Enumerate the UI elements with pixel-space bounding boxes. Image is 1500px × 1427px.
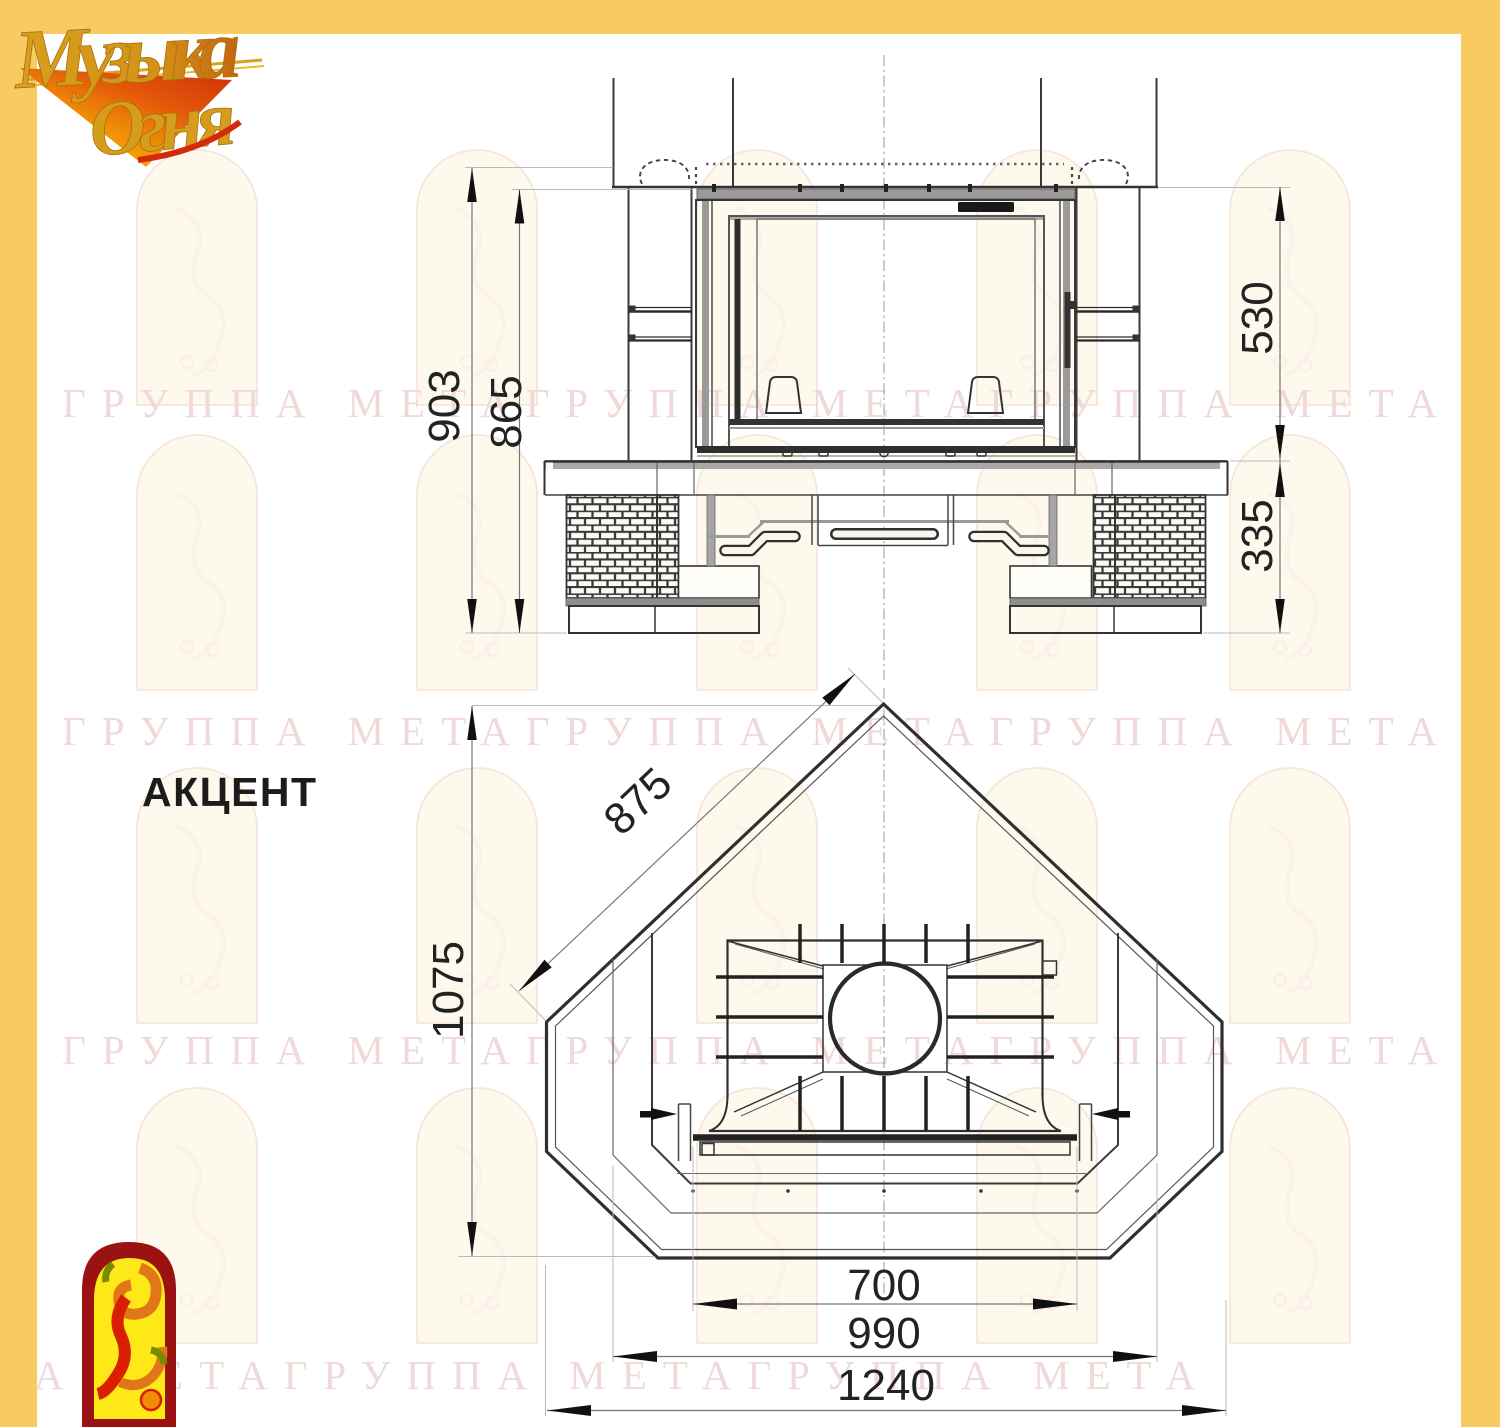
svg-text:335: 335 bbox=[1233, 499, 1282, 572]
svg-text:ГРУППА МЕТАГРУППА МЕТАГРУППА М: ГРУППА МЕТАГРУППА МЕТАГРУППА МЕТА bbox=[62, 1027, 1453, 1073]
svg-text:1075: 1075 bbox=[424, 941, 473, 1039]
svg-text:903: 903 bbox=[420, 369, 469, 442]
svg-text:АКЦЕНТ: АКЦЕНТ bbox=[142, 769, 318, 815]
svg-text:ГРУППА МЕТАГРУППА МЕТАГРУППА М: ГРУППА МЕТАГРУППА МЕТАГРУППА МЕТА bbox=[0, 1352, 1211, 1398]
svg-text:865: 865 bbox=[482, 375, 531, 448]
svg-text:ГРУППА МЕТАГРУППА МЕТАГРУППА М: ГРУППА МЕТАГРУППА МЕТАГРУППА МЕТА bbox=[62, 708, 1453, 754]
svg-text:700: 700 bbox=[847, 1261, 920, 1310]
svg-text:1240: 1240 bbox=[837, 1361, 935, 1410]
svg-text:990: 990 bbox=[847, 1309, 920, 1358]
svg-text:875: 875 bbox=[595, 758, 682, 844]
svg-text:530: 530 bbox=[1233, 281, 1282, 354]
